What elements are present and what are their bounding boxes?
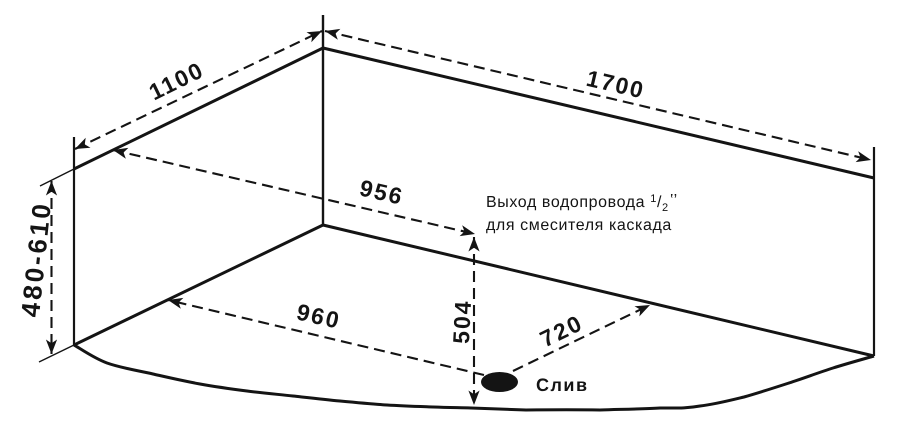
svg-text:Выход водопровода 1/2 ‛’: Выход водопровода 1/2 ‛’ (486, 192, 677, 214)
svg-text:Слив: Слив (536, 375, 589, 395)
svg-text:504: 504 (448, 299, 476, 345)
svg-text:для смесителя каскада: для смесителя каскада (486, 217, 672, 234)
